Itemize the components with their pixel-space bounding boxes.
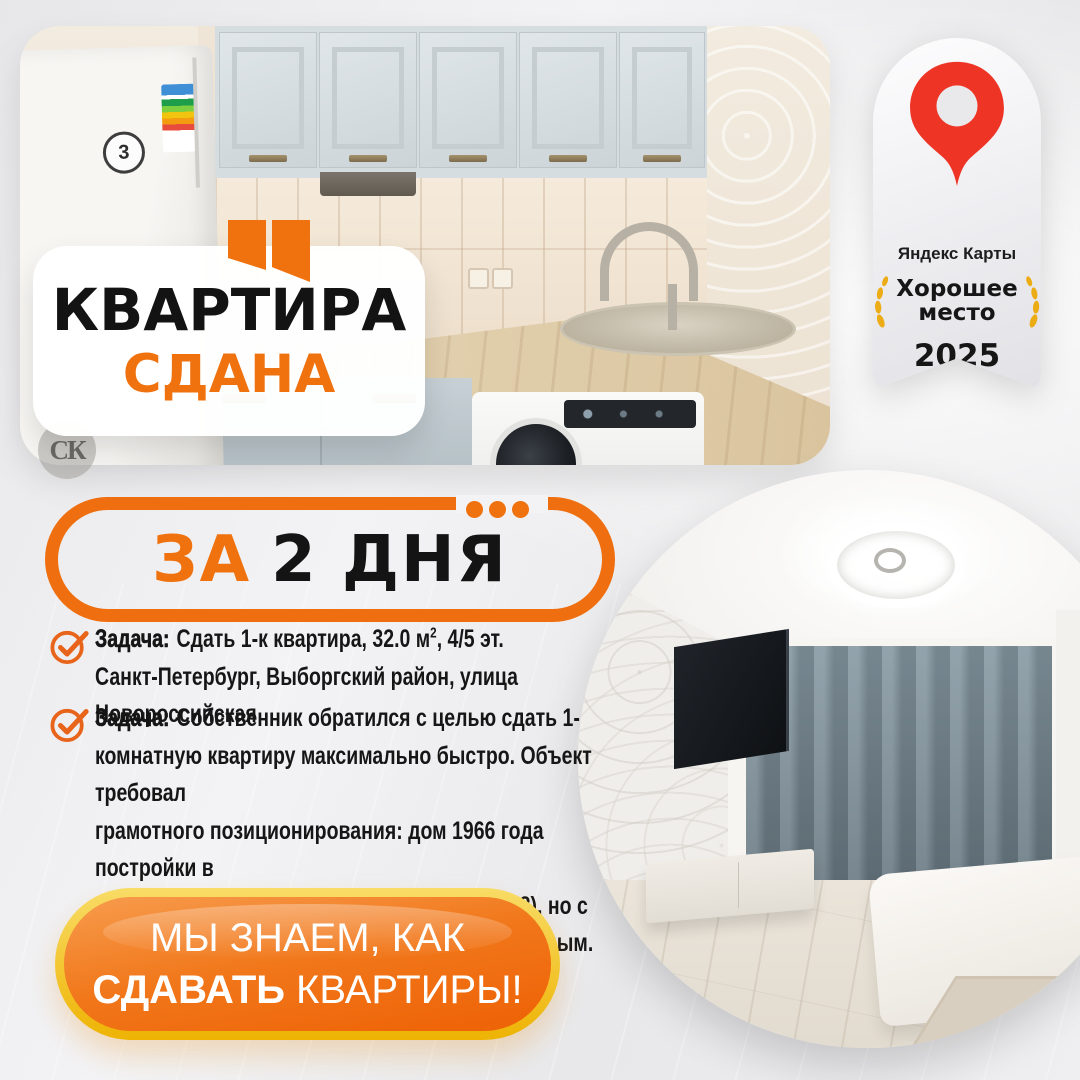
fridge-sticker: 3: [102, 131, 145, 174]
task-label: Задача:: [95, 625, 169, 653]
duration-pill: ЗА2 ДНЯ: [45, 497, 615, 622]
laurel-right-icon: [1024, 270, 1041, 334]
title-line1: КВАРТИРА: [52, 280, 407, 341]
cabinet-door: [419, 32, 517, 168]
power-outlet: [492, 268, 513, 289]
cabinet-door: [619, 32, 705, 168]
check-icon: [48, 702, 92, 746]
task-label: Задача:: [95, 704, 169, 732]
pill-rest: 2 ДНЯ: [271, 523, 508, 597]
task-1-post: , 4/5 эт.: [437, 625, 504, 653]
badge-brand: Яндекс Карты: [873, 244, 1041, 264]
map-pin-icon: [902, 58, 1012, 190]
range-hood: [320, 172, 416, 196]
cta-line2: СДАВАТЬКВАРТИРЫ!: [92, 964, 522, 1016]
task-1-line1: Задача:Сдать 1-к квартира, 32.0 м2, 4/5 …: [95, 621, 610, 659]
cta-line1: МЫ ЗНАЕМ, КАК: [150, 912, 465, 964]
award-line2: место: [896, 302, 1017, 326]
ceiling-light-core: [874, 548, 906, 573]
pill-highlight: ЗА: [152, 523, 251, 597]
award-line1: Хорошее: [896, 278, 1017, 302]
room-photo: [578, 470, 1080, 1048]
kitchen-faucet-stem: [668, 284, 677, 330]
cabinet-door: [219, 32, 317, 168]
tv: [674, 629, 789, 769]
award-year: 2025: [873, 338, 1041, 374]
energy-label: [161, 84, 197, 153]
cta-line2-rest: КВАРТИРЫ!: [296, 968, 523, 1012]
yandex-award-badge: Яндекс Карты Хорошее место: [873, 38, 1041, 390]
cta-button[interactable]: МЫ ЗНАЕМ, КАК СДАВАТЬКВАРТИРЫ!: [55, 888, 560, 1040]
cabinet-door: [319, 32, 417, 168]
title-card: КВАРТИРА СДАНА: [33, 246, 425, 436]
kitchen-sink: [560, 302, 796, 356]
washing-machine-panel: [564, 400, 696, 428]
washing-machine: [472, 392, 704, 465]
award-title: Хорошее место: [873, 270, 1041, 334]
upper-cabinets: [215, 26, 707, 178]
cta-button-face: МЫ ЗНАЕМ, КАК СДАВАТЬКВАРТИРЫ!: [64, 897, 551, 1031]
award-ribbon: Яндекс Карты Хорошее место: [873, 38, 1041, 390]
power-outlet: [468, 268, 489, 289]
title-line2: СДАНА: [123, 347, 336, 403]
task-1-pre: Сдать 1-к квартира, 32.0 м: [176, 625, 430, 653]
three-dots-icon: [466, 501, 529, 518]
laurel-left-icon: [873, 270, 890, 334]
check-icon: [48, 624, 92, 668]
cabinet-door: [519, 32, 617, 168]
cta-line2-bold: СДАВАТЬ: [92, 968, 285, 1012]
